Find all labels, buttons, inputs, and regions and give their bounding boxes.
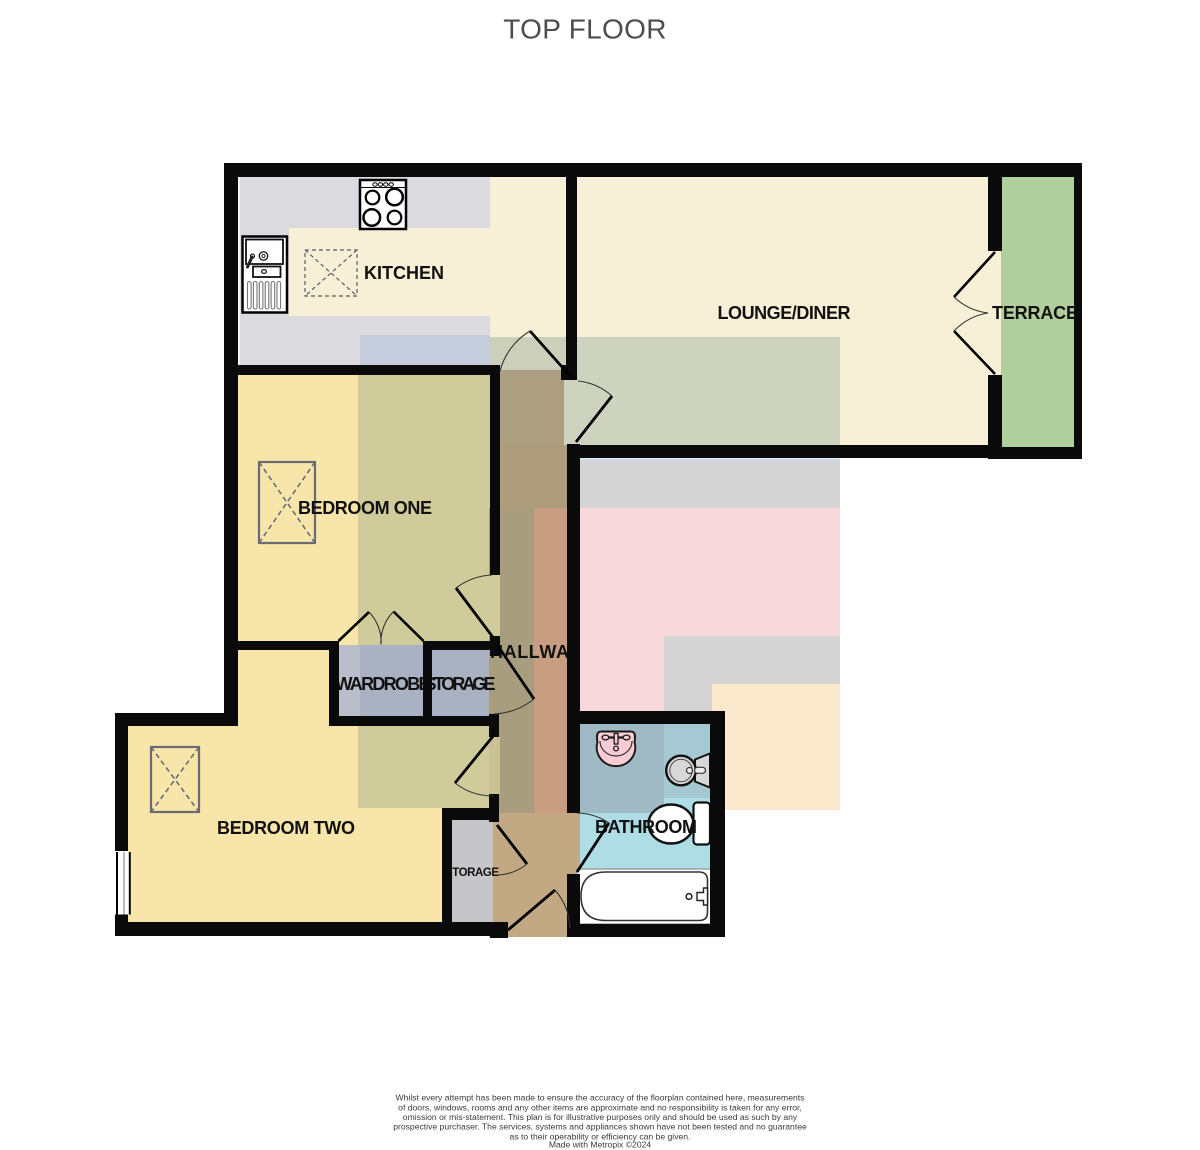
svg-text:WARDROBE: WARDROBE	[336, 674, 431, 694]
svg-text:STORAGE: STORAGE	[425, 674, 496, 694]
svg-text:Whilst every attempt has been: Whilst every attempt has been made to en…	[396, 1093, 805, 1103]
svg-text:KITCHEN: KITCHEN	[364, 263, 444, 283]
svg-text:Made with Metropix ©2024: Made with Metropix ©2024	[549, 1139, 652, 1149]
svg-text:TERRACE: TERRACE	[992, 303, 1078, 323]
svg-text:LOUNGE/DINER: LOUNGE/DINER	[718, 303, 851, 323]
svg-text:STORAGE: STORAGE	[445, 867, 499, 879]
svg-text:BATHROOM: BATHROOM	[595, 817, 697, 837]
svg-text:omission or mis-statement. Thi: omission or mis-statement. This plan is …	[403, 1112, 798, 1122]
svg-text:BEDROOM ONE: BEDROOM ONE	[298, 498, 432, 518]
svg-text:BEDROOM TWO: BEDROOM TWO	[217, 818, 355, 838]
svg-text:prospective purchaser. The ser: prospective purchaser. The services, sys…	[393, 1122, 807, 1132]
svg-text:TOP FLOOR: TOP FLOOR	[503, 14, 666, 45]
svg-text:of doors, windows, rooms and a: of doors, windows, rooms and any other i…	[398, 1102, 802, 1112]
